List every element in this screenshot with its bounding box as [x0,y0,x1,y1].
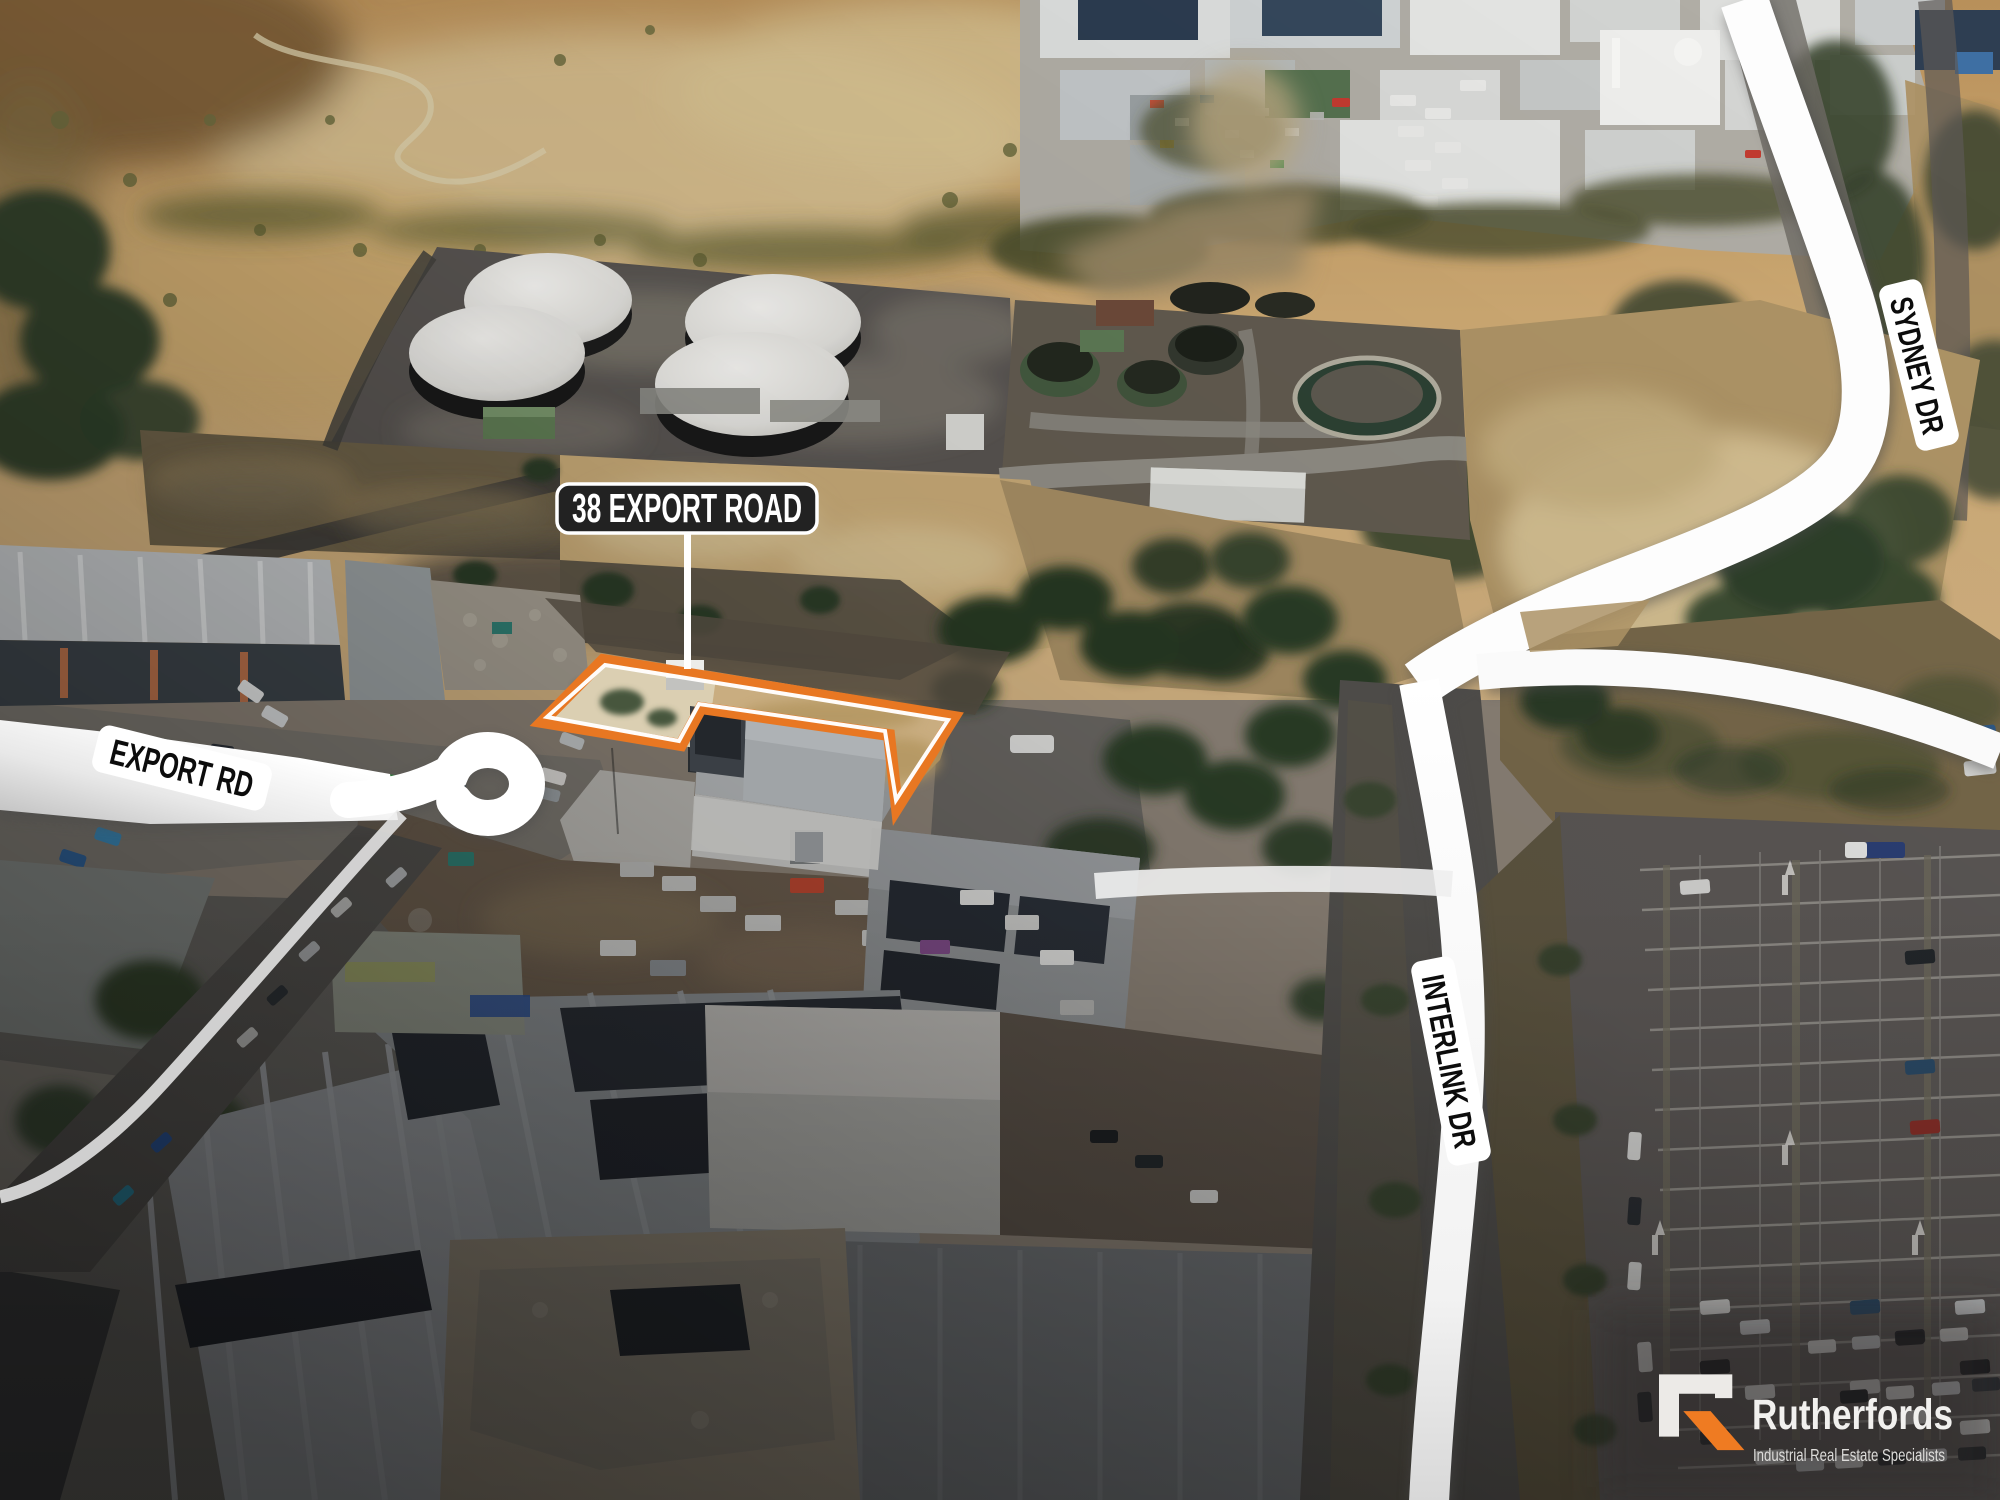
svg-text:Rutherfords: Rutherfords [1752,1391,1953,1439]
svg-text:Industrial Real Estate Special: Industrial Real Estate Specialists [1753,1445,1945,1465]
svg-text:38 EXPORT ROAD: 38 EXPORT ROAD [572,485,802,531]
